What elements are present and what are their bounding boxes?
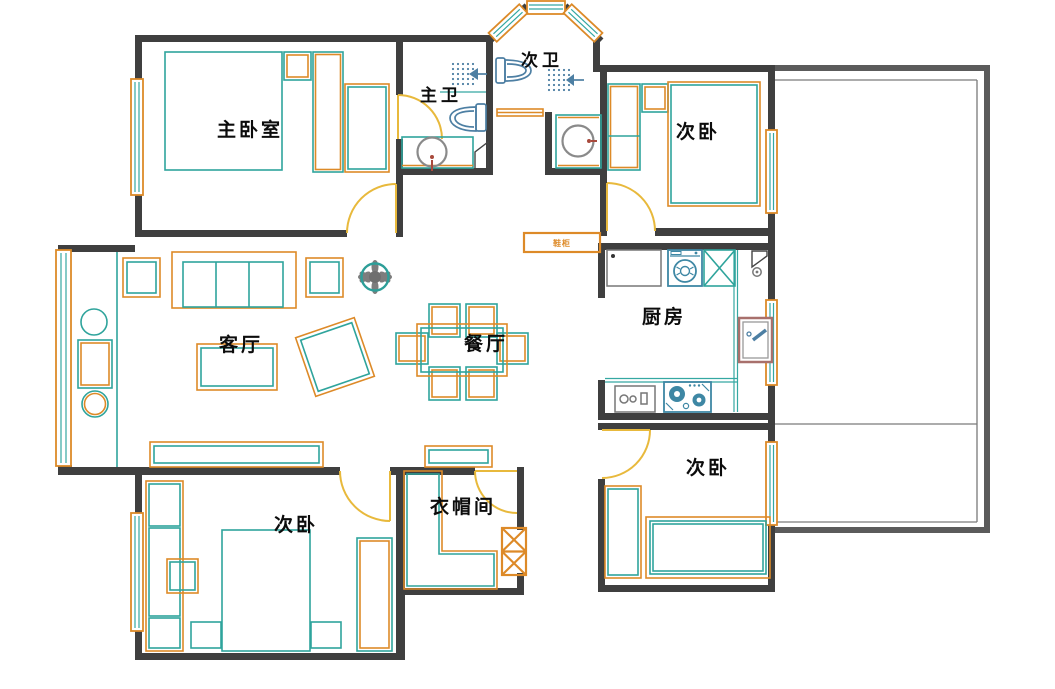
room-label-master-bedroom: 主卧室: [217, 118, 283, 141]
nightstand-icon: [191, 622, 221, 648]
door-bedroom-southeast: [602, 430, 650, 478]
faucet-icon: [587, 139, 591, 143]
room-label-kitchen: 厨房: [642, 305, 686, 328]
stool-icon: [81, 309, 107, 335]
room-label-bedroom-northeast: 次卧: [676, 120, 720, 143]
bedroom-southeast-furniture: [605, 486, 770, 578]
bed-icon: [646, 517, 770, 578]
window-bedroom-northeast: [766, 130, 777, 213]
nightstand-icon: [311, 622, 341, 648]
window-bedroom-southeast: [766, 442, 777, 525]
small-appliance-icon: [615, 386, 655, 412]
wardrobe-icon: [605, 486, 641, 578]
wardrobe-icon: [345, 84, 389, 172]
room-label-second-bathroom: 次卫: [521, 50, 563, 70]
door-bedroom-northeast: [607, 183, 655, 231]
utility-door-icon: [752, 251, 767, 276]
l-shaped-wardrobe-icon: [404, 471, 497, 589]
room-label-bedroom-southeast: 次卧: [686, 456, 730, 479]
sink-counter-icon: [556, 115, 601, 168]
room-label-master-bathroom: 主卫: [420, 85, 462, 105]
shoe-rack-icon: [502, 528, 526, 575]
wardrobe-icon: [146, 481, 183, 651]
room-label-cloakroom: 衣帽间: [430, 495, 496, 518]
master-bathroom-fixtures: [402, 63, 488, 171]
room-label-bedroom-southwest: 次卧: [274, 513, 318, 536]
washing-machine-icon: [668, 250, 702, 286]
toilet-icon: [450, 104, 486, 131]
balcony-walls: [775, 65, 990, 533]
door-master-bedroom: [347, 184, 396, 233]
room-label-dining-room: 餐厅: [464, 332, 508, 355]
shoe-cabinet-label: 鞋柜: [553, 238, 571, 248]
rotated-table-icon: [296, 318, 375, 397]
floor-plan-canvas: 鞋柜: [0, 0, 1055, 689]
shower-icon: [548, 69, 584, 91]
sliding-door-second-bathroom: [497, 109, 543, 116]
cabinet-icon: [425, 446, 492, 467]
dining-chair-icon: [466, 304, 497, 337]
bed-icon: [165, 52, 282, 170]
window-master-bedroom: [131, 79, 143, 195]
shower-icon: [452, 63, 487, 85]
cabinet-icon: [704, 250, 735, 286]
counter-line: [605, 250, 738, 412]
nightstand-icon: [642, 84, 668, 112]
stove-icon: [664, 382, 711, 412]
wardrobe-icon: [608, 84, 640, 170]
door-bedroom-southwest: [340, 471, 390, 521]
kitchen-fixtures: [605, 250, 772, 412]
sink-counter-icon: [402, 137, 473, 171]
master-bedroom-furniture: [165, 52, 389, 172]
shoe-cabinet-icon: 鞋柜: [524, 233, 600, 252]
cloakroom-furniture: [404, 471, 526, 589]
window-living-room: [56, 250, 71, 466]
wardrobe-icon: [313, 52, 343, 172]
balcony-table-icon: [78, 340, 112, 388]
plant-icon: [358, 260, 393, 294]
tv-cabinet-icon: [150, 442, 323, 467]
side-table-icon: [306, 258, 343, 297]
side-table-icon: [123, 258, 160, 297]
stool-icon: [82, 391, 108, 417]
bed-icon: [668, 82, 760, 206]
nightstand-icon: [284, 52, 311, 80]
faucet-icon: [430, 155, 434, 159]
wardrobe-icon: [357, 538, 392, 651]
floor-plan: 鞋柜: [0, 0, 1055, 689]
room-label-living-room: 客厅: [219, 333, 263, 356]
bay-window-left: [489, 4, 528, 41]
bay-window-top: [527, 1, 565, 14]
dining-chair-icon: [429, 304, 460, 337]
living-room-furniture: [78, 252, 392, 467]
bed-icon: [222, 530, 310, 651]
bay-window-right: [564, 4, 603, 41]
window-bedroom-southwest: [131, 513, 143, 631]
sofa-icon: [172, 252, 296, 308]
dining-chair-icon: [396, 333, 428, 364]
fridge-icon: [607, 250, 661, 286]
sink-icon: [739, 318, 772, 362]
bedroom-northeast-furniture: [608, 82, 760, 206]
